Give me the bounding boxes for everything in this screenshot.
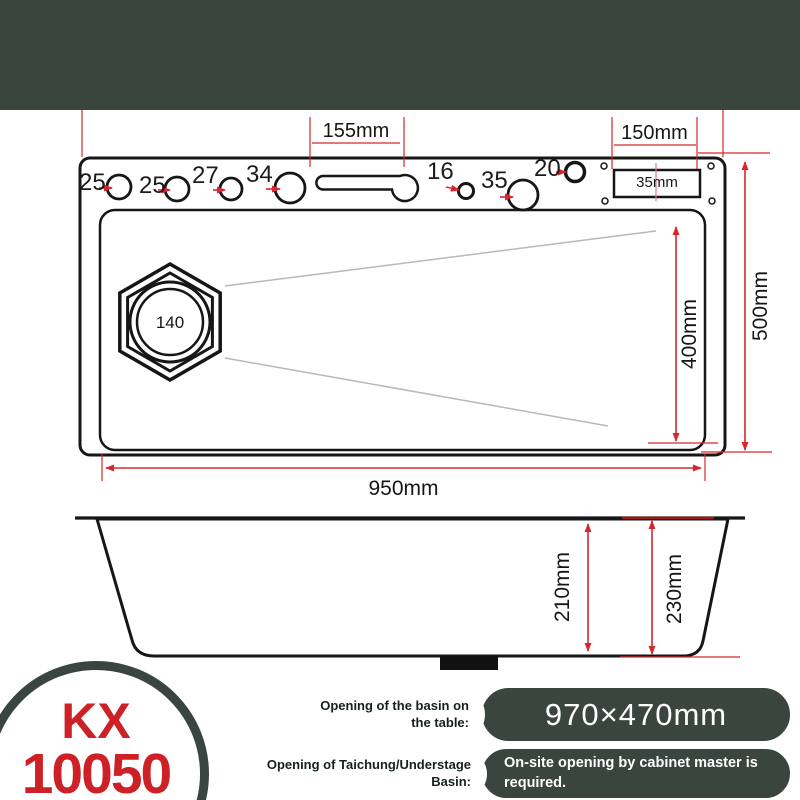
screw-dot xyxy=(708,163,714,169)
dim-150mm-label: 150mm xyxy=(611,122,698,145)
model-code-line2: 10050 xyxy=(0,746,209,800)
dim-950mm-label: 950mm xyxy=(102,477,705,501)
drain-outlet-rect xyxy=(440,656,498,670)
hole-label-34: 34 xyxy=(246,161,273,189)
table-opening-value-text: 970×470mm xyxy=(545,697,727,733)
dim-400mm-label: 400mm xyxy=(678,274,702,394)
hole-20-circle xyxy=(566,163,585,182)
dim-230mm-label: 230mm xyxy=(663,529,687,649)
hole-label-25b: 25 xyxy=(139,172,166,200)
screw-dot xyxy=(709,198,715,204)
table-opening-label-pill: Opening of the basin on the table: xyxy=(295,688,485,741)
dim-155mm-label: 155mm xyxy=(308,120,404,143)
hole-16-circle xyxy=(459,184,474,199)
footer-band xyxy=(0,0,800,110)
hole-35-circle xyxy=(508,180,538,210)
dim-500mm-label: 500mm xyxy=(749,246,773,366)
drain-140-label: 140 xyxy=(140,313,200,333)
hole-34-circle xyxy=(275,173,305,203)
screw-dot xyxy=(601,163,607,169)
undermount-opening-label: Opening of Taichung/Understage Basin: xyxy=(239,757,471,791)
hole-label-16: 16 xyxy=(427,158,454,186)
table-opening-label: Opening of the basin on the table: xyxy=(319,698,469,732)
panel-35mm-label: 35mm xyxy=(614,174,700,191)
hole-label-25a: 25 xyxy=(79,169,106,197)
hole-label-35: 35 xyxy=(481,167,508,195)
table-opening-value: 970×470mm xyxy=(480,686,792,743)
undermount-opening-value-text: On-site opening by cabinet master is req… xyxy=(504,754,766,792)
hole-label-20: 20 xyxy=(534,155,561,183)
hole-25b-circle xyxy=(165,177,189,201)
dim-210mm-label: 210mm xyxy=(551,527,575,647)
top-view-group xyxy=(80,158,725,455)
undermount-opening-label-pill: Opening of Taichung/Understage Basin: xyxy=(225,750,487,798)
side-profile-body xyxy=(97,519,728,656)
hole-27-circle xyxy=(220,178,242,200)
hole-label-27: 27 xyxy=(192,162,219,190)
product-size-diagram: Product size Manual measurement may have… xyxy=(0,0,800,800)
model-code-line1: KX xyxy=(0,696,209,746)
undermount-opening-value: On-site opening by cabinet master is req… xyxy=(480,747,792,800)
screw-dot xyxy=(602,198,608,204)
side-view-group xyxy=(75,518,745,670)
hole-25a-circle xyxy=(107,175,131,199)
